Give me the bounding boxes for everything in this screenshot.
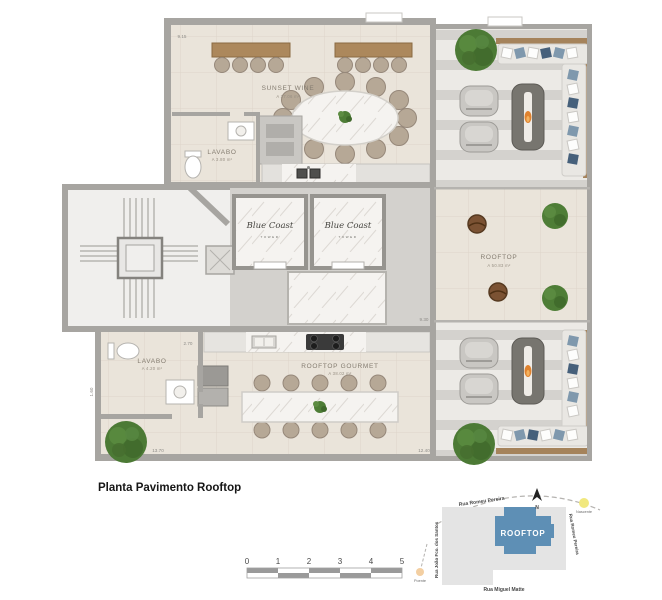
scale-tick: 4 xyxy=(369,557,374,566)
gourmet-area: A 38.02 m² xyxy=(328,371,352,376)
page-title: Planta Pavimento Rooftop xyxy=(98,482,241,494)
nascente-label: Nascente xyxy=(576,510,592,514)
sunset-icon xyxy=(416,568,424,576)
fire-pit-table xyxy=(512,338,544,404)
tree xyxy=(453,423,495,465)
lounge-chair xyxy=(460,374,498,404)
scale-tick: 1 xyxy=(276,557,281,566)
lounge-chair xyxy=(460,338,498,368)
cabinet-door xyxy=(266,142,294,156)
wood-ledge xyxy=(496,38,590,44)
rooftop-label: ROOFTOP xyxy=(481,254,518,261)
scale-tick: 2 xyxy=(307,557,312,566)
gourmet-sink xyxy=(252,336,276,348)
tree xyxy=(455,29,497,71)
elevator-lobby xyxy=(288,272,386,324)
scale-tick: 3 xyxy=(338,557,343,566)
planter xyxy=(468,215,486,233)
poente-leader xyxy=(421,544,427,568)
rooftop-area: A 50.83 m² xyxy=(487,263,511,268)
cooktop xyxy=(306,334,344,350)
map-rooftop-label: ROOFTOP xyxy=(500,529,545,538)
street-right-label: Rua Romeu Pereira xyxy=(568,513,580,555)
dim-lavabo-height: 1.60 xyxy=(89,387,94,396)
scale-tick: 5 xyxy=(400,557,405,566)
elevator-a-brand: Blue Coast xyxy=(246,221,294,231)
dim-bottom-left: 13.70 xyxy=(152,448,164,453)
street-bottom-label: Rua Miguel Matte xyxy=(483,587,524,593)
elevator-b-door xyxy=(332,262,364,269)
gourmet-label: ROOFTOP GOURMET xyxy=(301,363,378,370)
street-top-label: Rua Romeu Pereira xyxy=(458,496,505,508)
elevator-b xyxy=(312,196,384,268)
planter xyxy=(489,283,507,301)
lavabo-upper-area: A 3.80 m² xyxy=(212,157,233,162)
cabinet-door xyxy=(266,124,294,138)
sunset-wine-area: A 37.06 m² xyxy=(276,94,300,99)
elevator-a xyxy=(234,196,306,268)
bush xyxy=(542,203,568,229)
utility-shaft xyxy=(206,246,234,274)
elevator-a-sub: TOWER xyxy=(260,235,279,239)
north-label: N xyxy=(535,505,539,511)
wood-ledge xyxy=(496,448,590,454)
plan-drawing: Blue Coast TOWER Blue Coast TOWER xyxy=(0,0,662,600)
site-map: ROOFTOP N Nascente Rua Romeu Pereira Rua… xyxy=(414,488,600,593)
lavabo-lower-label: LAVABO xyxy=(137,358,166,365)
cabinet-block xyxy=(258,116,302,164)
dim-core-height: 9.30 xyxy=(420,317,429,322)
street-left-label: Rua João Fco. dos Santos xyxy=(434,521,439,578)
lounge-chair xyxy=(460,122,498,152)
scale-tick: 0 xyxy=(245,557,250,566)
bush xyxy=(542,285,568,311)
floor-plan-sheet: Blue Coast TOWER Blue Coast TOWER xyxy=(0,0,662,600)
dim-lavabo-width: 2.70 xyxy=(184,341,193,346)
sunrise-icon xyxy=(579,498,589,508)
lavabo-upper-label: LAVABO xyxy=(207,149,236,156)
elevator-b-sub: TOWER xyxy=(338,235,357,239)
lavabo-lower-area: A 4.20 m² xyxy=(142,366,163,371)
dim-top-width: 9.15 xyxy=(178,34,187,39)
toilet xyxy=(185,151,201,178)
sink xyxy=(228,122,254,140)
elevator-a-door xyxy=(254,262,286,269)
tree xyxy=(105,421,147,463)
north-arrow-icon xyxy=(532,488,542,501)
wood-bar-counter xyxy=(335,43,412,57)
sink xyxy=(166,380,194,404)
wood-bar-counter xyxy=(212,43,290,57)
fire-pit-table xyxy=(512,84,544,150)
elevator-b-brand: Blue Coast xyxy=(324,221,372,231)
sunset-wine-label: SUNSET WINE xyxy=(262,85,315,92)
toilet xyxy=(108,343,139,359)
poente-label: Poente xyxy=(414,579,426,583)
lounge-chair xyxy=(460,86,498,116)
scale-bar-segments xyxy=(247,568,402,578)
dim-bottom-right: 12.40 xyxy=(418,448,430,453)
scale-bar: 0 1 2 3 4 5 xyxy=(245,557,405,578)
